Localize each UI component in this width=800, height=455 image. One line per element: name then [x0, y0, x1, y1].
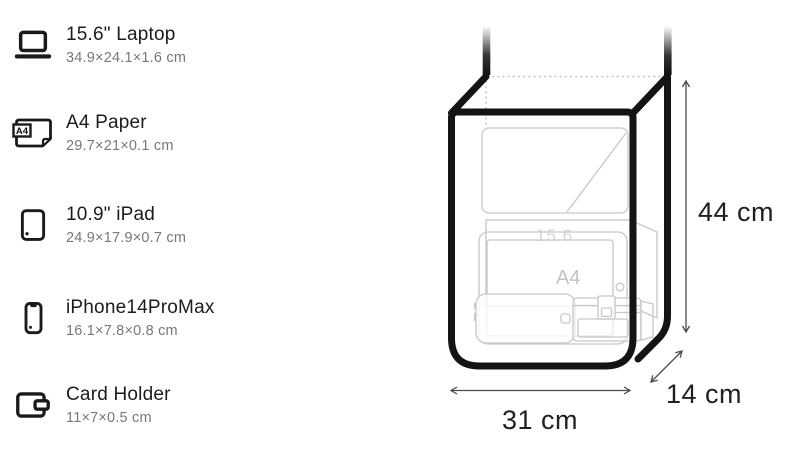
ghost-laptop	[482, 128, 628, 213]
height-label: 44 cm	[698, 197, 774, 227]
ipad-icon	[10, 208, 56, 242]
item-title: 10.9" iPad	[66, 204, 186, 226]
item-title: iPhone14ProMax	[66, 297, 215, 319]
item-dimensions: 11×7×0.5 cm	[66, 410, 171, 427]
list-item-laptop: 15.6" Laptop 34.9×24.1×1.6 cm	[10, 16, 186, 74]
width-label: 31 cm	[502, 405, 578, 435]
a4-paper-icon: A4	[10, 116, 56, 150]
laptop-icon	[10, 29, 56, 61]
ghost-a4-label: A4	[556, 267, 580, 289]
list-item-a4-paper: A4 A4 Paper 29.7×21×0.1 cm	[10, 104, 174, 162]
item-dimensions: 24.9×17.9×0.7 cm	[66, 230, 186, 247]
strap-left	[483, 26, 491, 75]
list-item-iphone: iPhone14ProMax 16.1×7.8×0.8 cm	[10, 289, 215, 347]
a4-icon-label: A4	[16, 126, 29, 137]
bag-dimensions-infographic: 15.6" Laptop 34.9×24.1×1.6 cm A4 A4 Pape…	[0, 0, 800, 455]
item-dimensions: 29.7×21×0.1 cm	[66, 138, 174, 155]
depth-arrow	[651, 351, 682, 382]
ghost-card-holder	[573, 296, 653, 341]
item-title: Card Holder	[66, 384, 171, 406]
strap-right	[664, 26, 672, 75]
item-dimensions: 34.9×24.1×1.6 cm	[66, 50, 186, 67]
bag-diagram: 15.6 A4	[420, 0, 800, 455]
list-item-ipad: 10.9" iPad 24.9×17.9×0.7 cm	[10, 196, 186, 254]
item-title: 15.6" Laptop	[66, 24, 186, 46]
list-item-card-holder: Card Holder 11×7×0.5 cm	[10, 376, 171, 434]
depth-label: 14 cm	[666, 379, 742, 409]
iphone-icon	[10, 301, 56, 335]
ghost-laptop-label: 15.6	[536, 226, 573, 245]
item-title: A4 Paper	[66, 112, 174, 134]
card-holder-icon	[10, 390, 56, 420]
item-dimensions: 16.1×7.8×0.8 cm	[66, 323, 215, 340]
ghost-iphone	[475, 294, 575, 343]
